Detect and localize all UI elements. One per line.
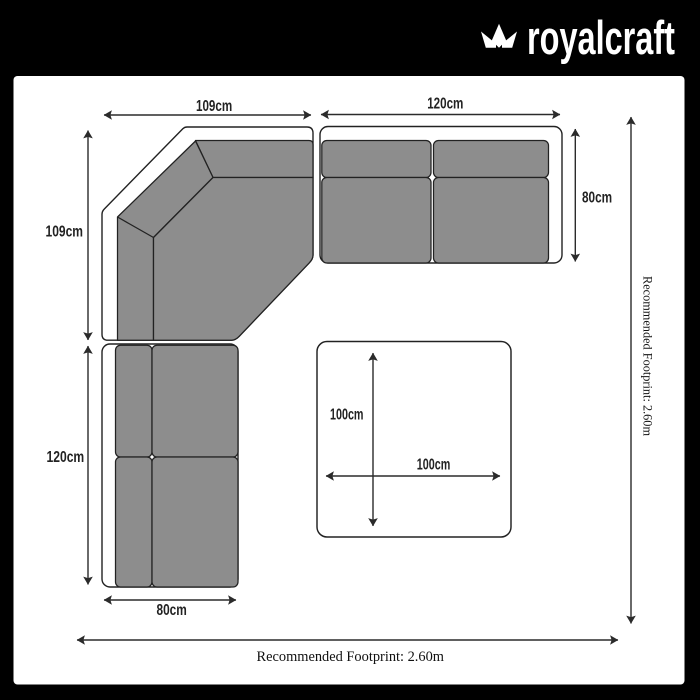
svg-text:royalcraft: royalcraft xyxy=(527,11,675,64)
svg-text:80cm: 80cm xyxy=(582,189,612,206)
svg-text:Recommended Footprint: 2.60m: Recommended Footprint: 2.60m xyxy=(257,649,445,665)
svg-text:80cm: 80cm xyxy=(157,602,187,619)
svg-text:120cm: 120cm xyxy=(47,449,85,466)
svg-text:100cm: 100cm xyxy=(417,457,451,474)
svg-text:120cm: 120cm xyxy=(427,96,463,113)
svg-text:100cm: 100cm xyxy=(330,406,364,423)
svg-text:Recommended Footprint: 2.60m: Recommended Footprint: 2.60m xyxy=(641,276,656,436)
svg-text:109cm: 109cm xyxy=(196,98,232,115)
svg-text:109cm: 109cm xyxy=(46,224,84,241)
